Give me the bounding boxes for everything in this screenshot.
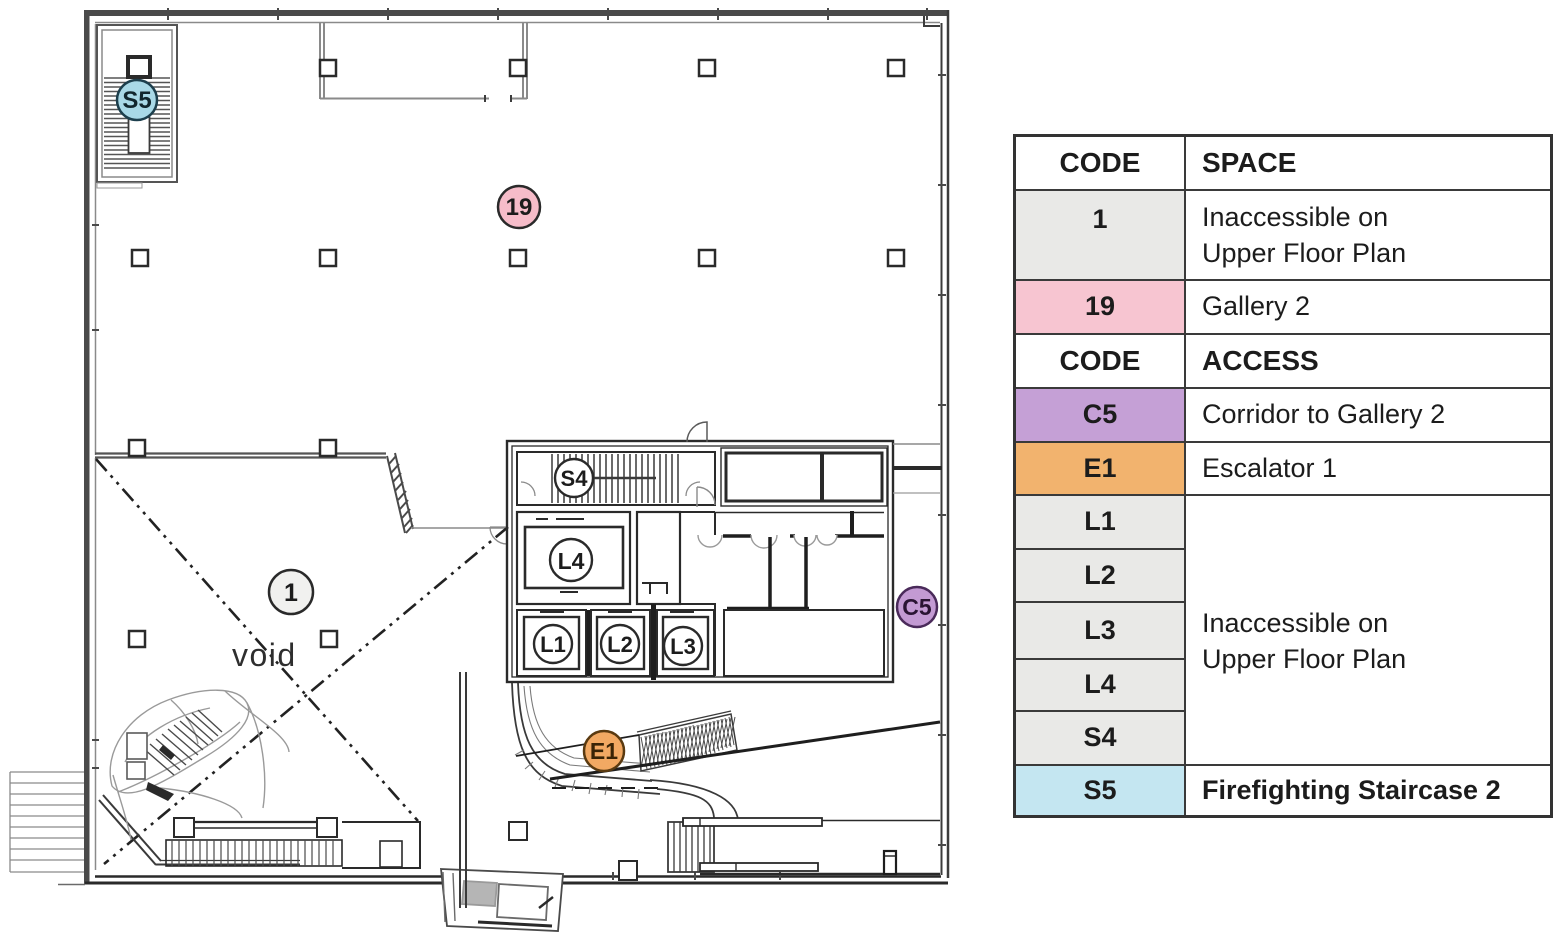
- svg-text:S5: S5: [122, 87, 151, 114]
- svg-text:L1: L1: [540, 632, 566, 657]
- svg-text:1: 1: [284, 579, 298, 607]
- svg-text:S4: S4: [561, 466, 589, 491]
- svg-text:L4: L4: [558, 548, 585, 574]
- svg-text:19: 19: [506, 194, 533, 221]
- svg-text:void: void: [232, 637, 297, 673]
- svg-text:C5: C5: [902, 594, 932, 620]
- svg-text:L2: L2: [607, 632, 633, 657]
- svg-text:L3: L3: [670, 634, 696, 659]
- svg-text:E1: E1: [590, 738, 618, 764]
